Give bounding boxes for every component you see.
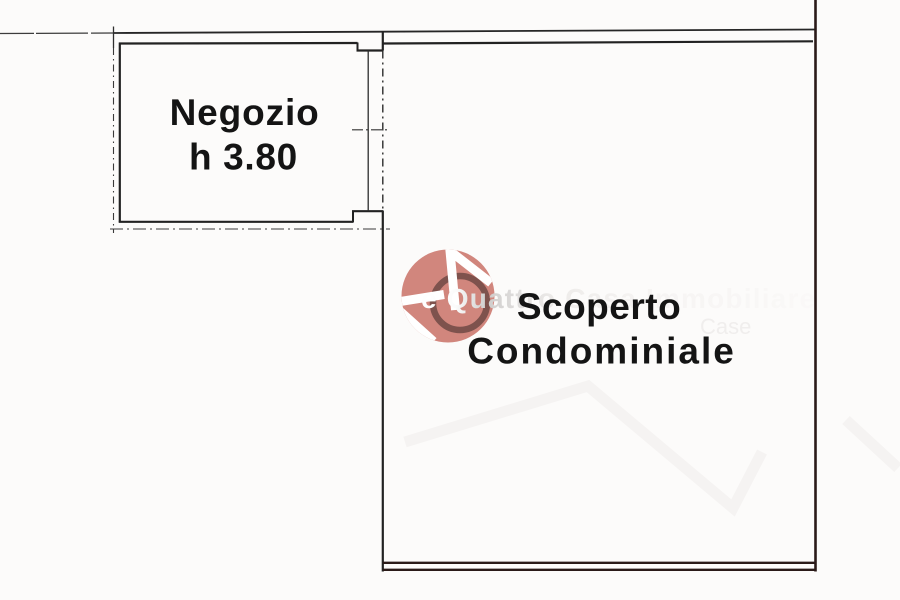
svg-text:h 3.80: h 3.80 bbox=[189, 136, 298, 177]
svg-text:Condominiale: Condominiale bbox=[467, 331, 736, 372]
svg-text:Negozio: Negozio bbox=[170, 92, 320, 133]
svg-text:Scoperto: Scoperto bbox=[517, 286, 681, 327]
